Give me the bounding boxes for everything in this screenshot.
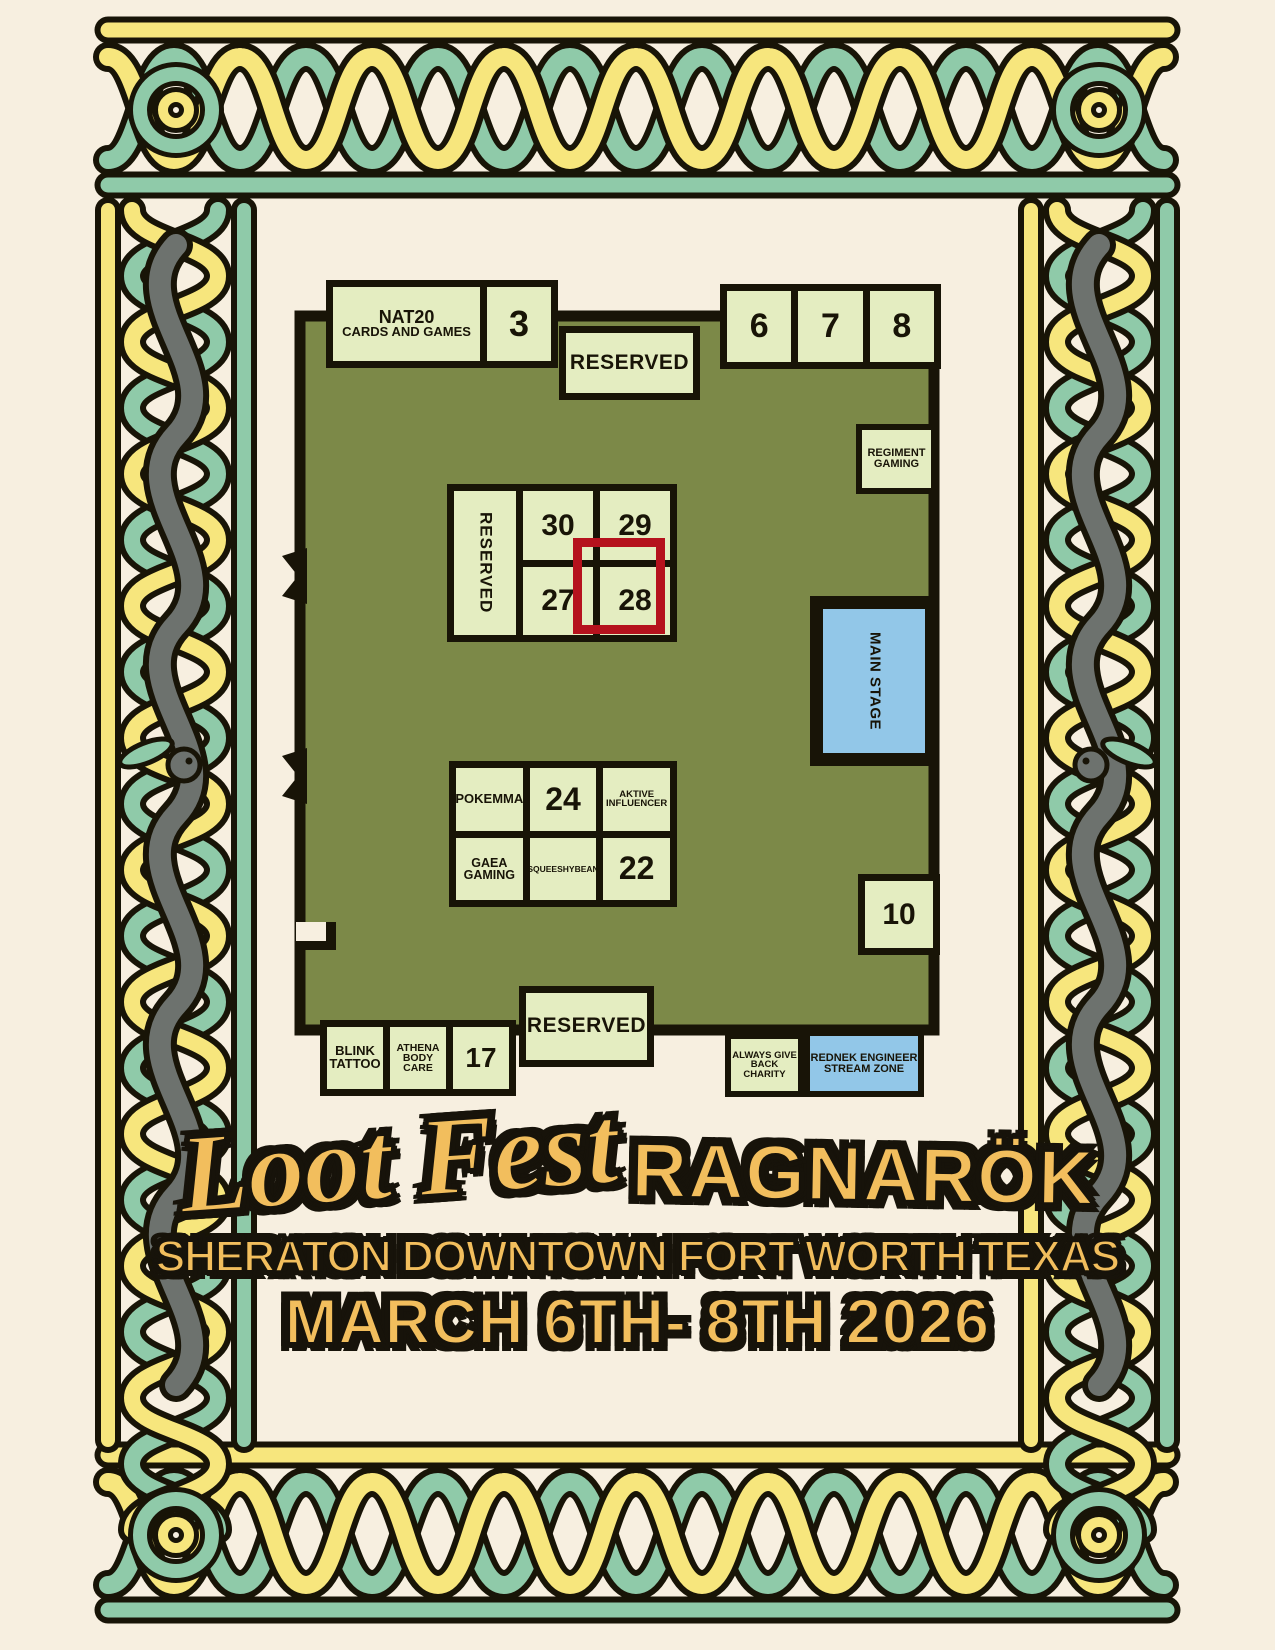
booth-athena-line2: BODY CARE	[390, 1053, 446, 1074]
booth-nat20: NAT20 CARDS AND GAMES	[333, 287, 480, 361]
booth-nat20-line2: CARDS AND GAMES	[342, 326, 471, 339]
booth-gaea-line2: GAMING	[464, 869, 515, 881]
booth-22: 22	[603, 838, 670, 901]
booth-blink-line2: TATTOO	[329, 1058, 380, 1071]
wall-step-inner	[296, 922, 326, 941]
booth-3: 3	[487, 287, 551, 361]
date-line: MARCH 6TH- 8TH 2026	[0, 1286, 1275, 1358]
booth-gaea-line1: GAEA	[471, 857, 507, 869]
event-title: Loot Fest RAGNARÖK	[0, 1078, 1275, 1243]
booth-regiment-gaming: REGIMENT GAMING	[856, 424, 937, 494]
event-title-caps: RAGNARÖK	[631, 1127, 1096, 1222]
main-stage: MAIN STAGE	[810, 596, 938, 766]
booth-6: 6	[727, 291, 791, 362]
booth-reserved-bottom: RESERVED	[519, 986, 654, 1067]
event-title-script: Loot Fest	[175, 1081, 622, 1240]
booth-gaea-gaming: GAEA GAMING	[456, 838, 523, 901]
booth-aktive-line2: INFLUENCER	[606, 799, 667, 808]
booth-squeeshybean: SQUEESHYBEAN	[530, 838, 597, 901]
booth-reserved-top: RESERVED	[559, 326, 700, 400]
booth-pokemma: POKEMMA	[456, 768, 523, 831]
booth-group-nat20: NAT20 CARDS AND GAMES 3	[326, 280, 558, 368]
booth-always-line2: BACK CHARITY	[731, 1060, 798, 1079]
main-stage-label: MAIN STAGE	[867, 632, 882, 730]
booth-aktive-influencer: AKTIVE INFLUENCER	[603, 768, 670, 831]
booth-reserved-vertical: RESERVED	[454, 491, 516, 635]
booth-28-highlight-frame	[573, 538, 665, 634]
booth-10: 10	[858, 874, 940, 955]
booth-rednek-line1: REDNEK ENGINEER	[811, 1053, 918, 1064]
vendor-grid: POKEMMA 24 AKTIVE INFLUENCER GAEA GAMING…	[456, 768, 670, 900]
booth-7: 7	[798, 291, 862, 362]
booth-group-center-bottom: POKEMMA 24 AKTIVE INFLUENCER GAEA GAMING…	[449, 761, 677, 907]
booth-24: 24	[530, 768, 597, 831]
booth-regiment-line2: GAMING	[874, 459, 919, 470]
venue-line: SHERATON DOWNTOWN FORT WORTH TEXAS	[0, 1232, 1275, 1282]
booth-group-6-7-8: 6 7 8	[720, 284, 941, 369]
booth-rednek-line2: STREAM ZONE	[824, 1064, 904, 1075]
booth-8: 8	[870, 291, 934, 362]
